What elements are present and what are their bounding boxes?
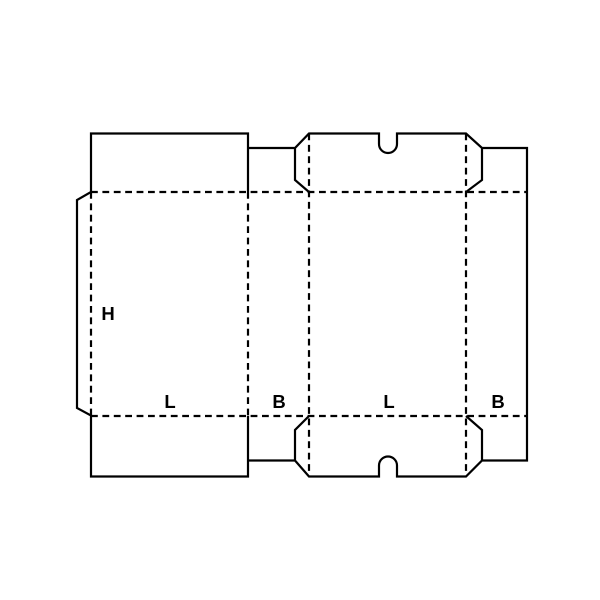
- carton-dieline-diagram: H L B L B: [0, 0, 600, 600]
- length-right-label: L: [383, 391, 394, 412]
- cut-lines: [77, 134, 527, 477]
- canvas: H L B L B: [0, 0, 600, 600]
- breadth-right-label: B: [491, 391, 504, 412]
- fold-lines: [91, 134, 527, 477]
- length-left-label: L: [164, 391, 175, 412]
- breadth-left-label: B: [272, 391, 285, 412]
- height-label: H: [101, 303, 114, 324]
